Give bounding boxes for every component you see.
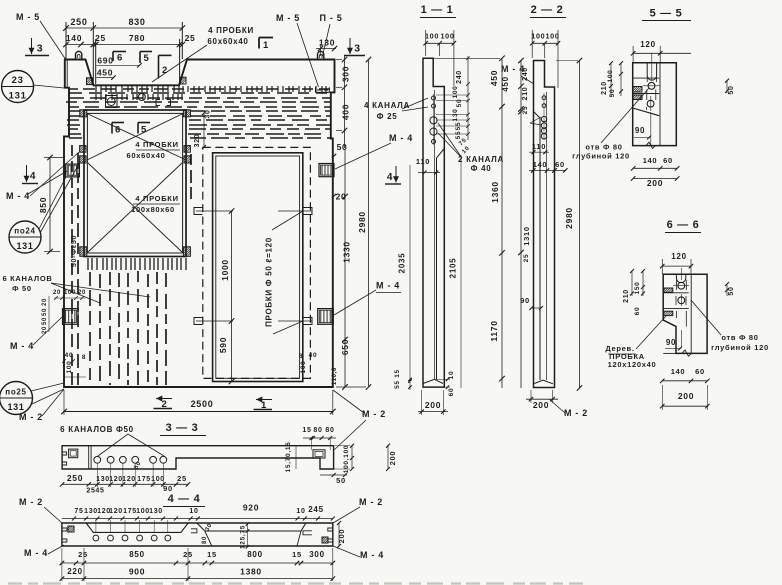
svg-text:60: 60 (634, 307, 641, 316)
svg-text:6 КАНАЛОВ: 6 КАНАЛОВ (3, 274, 53, 283)
svg-text:1 — 1: 1 — 1 (421, 4, 454, 16)
svg-text:100: 100 (136, 508, 150, 515)
svg-text:Ф 25: Ф 25 (377, 112, 398, 121)
svg-text:глубиной 120: глубиной 120 (572, 152, 630, 161)
svg-text:60: 60 (555, 160, 565, 169)
svg-text:2 — 2: 2 — 2 (531, 4, 564, 16)
svg-text:100: 100 (425, 32, 439, 41)
svg-text:250: 250 (70, 17, 87, 27)
svg-text:М - 2: М - 2 (19, 497, 43, 507)
svg-text:100: 100 (607, 70, 614, 83)
svg-text:900: 900 (129, 567, 145, 577)
svg-text:150: 150 (634, 282, 641, 295)
svg-text:90: 90 (666, 338, 676, 347)
svg-text:110: 110 (416, 157, 430, 166)
svg-text:60: 60 (663, 156, 673, 165)
svg-text:690: 690 (97, 56, 113, 66)
svg-text:8: 8 (82, 354, 86, 361)
svg-text:125,75: 125,75 (240, 525, 247, 549)
svg-text:140: 140 (671, 367, 686, 376)
svg-text:45: 45 (95, 488, 104, 495)
svg-text:800: 800 (247, 550, 262, 559)
svg-text:55 15: 55 15 (394, 369, 401, 389)
svg-text:131: 131 (9, 91, 27, 102)
svg-text:6 КАНАЛОВ Ф50: 6 КАНАЛОВ Ф50 (60, 425, 134, 434)
svg-text:60: 60 (448, 388, 455, 397)
svg-text:по25: по25 (5, 388, 26, 397)
svg-text:130: 130 (149, 508, 163, 515)
svg-text:8: 8 (299, 353, 303, 360)
svg-text:450: 450 (501, 76, 510, 91)
svg-text:2980: 2980 (564, 207, 574, 229)
svg-text:200: 200 (533, 400, 549, 410)
svg-text:650: 650 (340, 339, 350, 355)
svg-text:130: 130 (96, 476, 110, 483)
svg-text:Ф 50: Ф 50 (12, 284, 32, 293)
svg-text:25: 25 (523, 254, 530, 263)
svg-text:1: 1 (261, 400, 267, 411)
svg-text:5 — 5: 5 — 5 (650, 8, 683, 20)
svg-text:глубиной 120: глубиной 120 (711, 343, 769, 352)
svg-text:100: 100 (151, 476, 165, 483)
svg-text:55: 55 (455, 131, 462, 140)
svg-text:200: 200 (678, 391, 694, 401)
svg-text:отв Ф 80: отв Ф 80 (585, 143, 622, 152)
svg-text:М - 2: М - 2 (362, 409, 386, 419)
svg-text:100: 100 (300, 361, 307, 374)
svg-text:920: 920 (243, 503, 259, 513)
svg-text:100: 100 (531, 32, 545, 41)
svg-text:М - 4: М - 4 (6, 191, 30, 201)
svg-text:110,8: 110,8 (332, 367, 338, 385)
svg-text:отв Ф 80: отв Ф 80 (721, 333, 758, 342)
svg-text:200: 200 (388, 451, 397, 466)
svg-text:М - 2: М - 2 (564, 408, 588, 418)
svg-text:400: 400 (341, 104, 351, 120)
svg-text:2035: 2035 (398, 253, 407, 274)
svg-text:3 — 3: 3 — 3 (166, 422, 199, 434)
svg-text:240: 240 (456, 70, 463, 84)
svg-text:1380: 1380 (240, 567, 262, 577)
svg-text:М - 4: М - 4 (10, 341, 34, 351)
svg-text:90: 90 (635, 126, 645, 135)
svg-text:140: 140 (533, 160, 548, 169)
svg-text:6: 6 (115, 125, 121, 136)
svg-text:120: 120 (122, 476, 136, 483)
svg-text:590: 590 (218, 337, 228, 353)
svg-text:60x60x40: 60x60x40 (127, 151, 166, 160)
svg-text:25: 25 (95, 33, 106, 43)
svg-text:4 ПРОБКИ: 4 ПРОБКИ (135, 194, 178, 203)
svg-text:15: 15 (302, 427, 311, 434)
svg-text:4 — 4: 4 — 4 (168, 493, 201, 505)
svg-text:5: 5 (141, 125, 147, 136)
svg-text:2: 2 (162, 399, 168, 410)
svg-text:1330: 1330 (342, 241, 352, 263)
svg-text:200: 200 (647, 178, 663, 188)
svg-text:200: 200 (337, 529, 346, 544)
svg-text:20: 20 (42, 326, 48, 334)
svg-text:90: 90 (163, 484, 173, 493)
svg-text:1000: 1000 (220, 259, 230, 281)
svg-text:50: 50 (728, 286, 735, 295)
svg-text:140: 140 (66, 33, 82, 43)
svg-text:ПРОБКИ Ф 50 ℓ=120: ПРОБКИ Ф 50 ℓ=120 (265, 237, 274, 327)
svg-text:450: 450 (97, 68, 113, 78)
svg-text:250: 250 (67, 473, 83, 483)
svg-text:25: 25 (86, 488, 95, 495)
svg-text:6 — 6: 6 — 6 (667, 219, 700, 231)
svg-text:1170: 1170 (489, 320, 499, 341)
svg-text:20: 20 (53, 290, 61, 296)
svg-text:15,70,15: 15,70,15 (285, 442, 292, 473)
svg-text:120: 120 (671, 252, 686, 261)
svg-text:М - 5: М - 5 (276, 13, 300, 23)
svg-text:20: 20 (42, 298, 48, 306)
svg-text:5: 5 (144, 53, 150, 64)
svg-text:210: 210 (623, 289, 630, 303)
svg-text:50: 50 (728, 85, 735, 94)
svg-text:100: 100 (545, 32, 559, 41)
svg-text:120: 120 (109, 508, 123, 515)
svg-text:15: 15 (207, 550, 217, 559)
svg-text:15: 15 (292, 550, 302, 559)
svg-text:175: 175 (137, 476, 151, 483)
svg-text:М - 4: М - 4 (376, 281, 400, 291)
svg-text:60x60x40: 60x60x40 (207, 37, 248, 46)
svg-text:М - 4: М - 4 (360, 550, 384, 560)
svg-text:2 КАНАЛА: 2 КАНАЛА (458, 155, 504, 164)
svg-text:2980: 2980 (357, 211, 367, 233)
svg-text:23: 23 (12, 75, 24, 86)
svg-text:6: 6 (117, 53, 123, 64)
svg-text:10: 10 (296, 508, 305, 515)
svg-text:50: 50 (337, 142, 348, 152)
svg-text:4 ПРОБКИ: 4 ПРОБКИ (208, 26, 254, 35)
svg-text:3: 3 (354, 43, 361, 55)
svg-text:2105: 2105 (449, 258, 458, 279)
svg-text:20: 20 (78, 290, 86, 296)
svg-text:75: 75 (74, 508, 83, 515)
svg-text:50: 50 (609, 89, 616, 98)
svg-text:175: 175 (123, 508, 137, 515)
svg-text:50: 50 (42, 317, 48, 325)
svg-text:100: 100 (440, 32, 454, 41)
svg-text:210: 210 (522, 87, 529, 101)
svg-text:300: 300 (309, 550, 324, 559)
svg-text:4 ПРОБКИ: 4 ПРОБКИ (135, 140, 178, 149)
svg-text:4: 4 (387, 172, 393, 183)
svg-text:131: 131 (7, 402, 24, 412)
svg-text:50-Фℓ50: 50-Фℓ50 (71, 235, 78, 267)
svg-text:780: 780 (129, 33, 145, 43)
svg-text:80: 80 (325, 427, 334, 434)
svg-text:130: 130 (319, 38, 335, 48)
svg-text:220: 220 (67, 567, 82, 576)
svg-text:по24: по24 (14, 227, 35, 236)
svg-text:М - 2: М - 2 (359, 497, 383, 507)
svg-text:25: 25 (78, 550, 88, 559)
svg-text:2500: 2500 (191, 399, 214, 409)
svg-text:50: 50 (336, 476, 346, 485)
svg-text:140: 140 (643, 156, 658, 165)
svg-text:90: 90 (520, 296, 530, 305)
svg-text:40: 40 (309, 352, 318, 359)
svg-text:40: 40 (65, 352, 74, 359)
svg-text:М - 4: М - 4 (24, 548, 48, 558)
svg-text:850: 850 (38, 197, 48, 213)
svg-text:300: 300 (341, 66, 351, 82)
svg-text:131: 131 (16, 241, 33, 251)
svg-text:80: 80 (313, 427, 322, 434)
svg-text:П - 5: П - 5 (320, 13, 343, 23)
svg-text:120: 120 (109, 476, 123, 483)
svg-text:120x120x40: 120x120x40 (608, 360, 657, 369)
svg-text:245: 245 (308, 505, 323, 514)
svg-text:10: 10 (189, 508, 198, 515)
svg-text:130: 130 (452, 109, 459, 122)
svg-text:25: 25 (522, 106, 529, 115)
svg-text:60: 60 (695, 367, 705, 376)
svg-text:100x80x60: 100x80x60 (131, 205, 175, 214)
svg-text:1360: 1360 (490, 181, 500, 203)
svg-text:110: 110 (532, 142, 546, 151)
svg-text:1: 1 (263, 40, 269, 51)
svg-text:100: 100 (64, 290, 76, 296)
svg-text:450: 450 (489, 70, 499, 86)
svg-text:25: 25 (185, 33, 196, 43)
svg-text:25: 25 (177, 474, 187, 483)
svg-text:80: 80 (202, 536, 208, 544)
svg-text:120: 120 (640, 40, 655, 49)
svg-text:М - 4: М - 4 (501, 64, 525, 74)
svg-text:4: 4 (30, 171, 36, 182)
svg-text:М - 4: М - 4 (389, 133, 413, 143)
svg-text:50: 50 (456, 99, 463, 108)
svg-text:320: 320 (194, 134, 201, 148)
svg-text:55: 55 (455, 122, 462, 131)
svg-text:М - 2: М - 2 (19, 412, 43, 422)
svg-text:850: 850 (129, 550, 144, 559)
svg-text:830: 830 (128, 17, 145, 27)
svg-text:М - 5: М - 5 (16, 12, 40, 22)
svg-text:200: 200 (425, 400, 441, 410)
svg-text:50: 50 (42, 308, 48, 316)
svg-text:1310: 1310 (522, 226, 531, 246)
svg-text:100: 100 (452, 86, 459, 99)
svg-text:Ф 40: Ф 40 (471, 164, 492, 173)
svg-text:3: 3 (37, 43, 44, 55)
svg-text:130: 130 (84, 508, 98, 515)
